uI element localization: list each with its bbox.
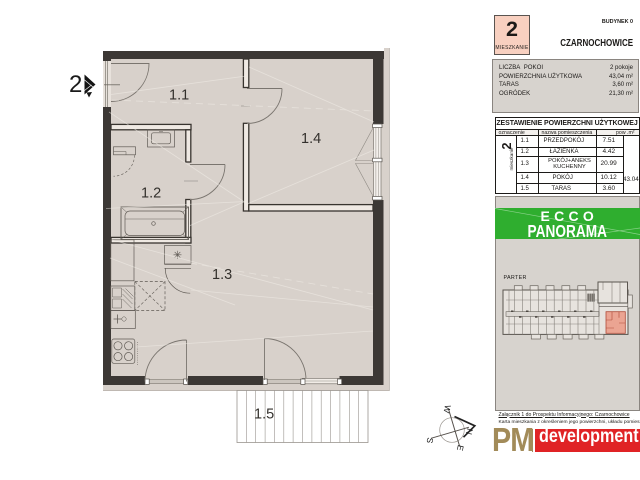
svg-text:1.4: 1.4 [301, 131, 321, 147]
svg-text:E: E [455, 444, 466, 452]
svg-text:mieszkanie: mieszkanie [509, 147, 514, 170]
svg-text:S: S [424, 437, 435, 445]
svg-text:1.5: 1.5 [254, 407, 274, 423]
svg-text:2: 2 [69, 71, 82, 98]
svg-text:1.3: 1.3 [212, 267, 232, 283]
svg-text:1.1: 1.1 [169, 88, 189, 104]
svg-text:1.2: 1.2 [141, 186, 161, 202]
svg-text:W: W [441, 404, 453, 414]
